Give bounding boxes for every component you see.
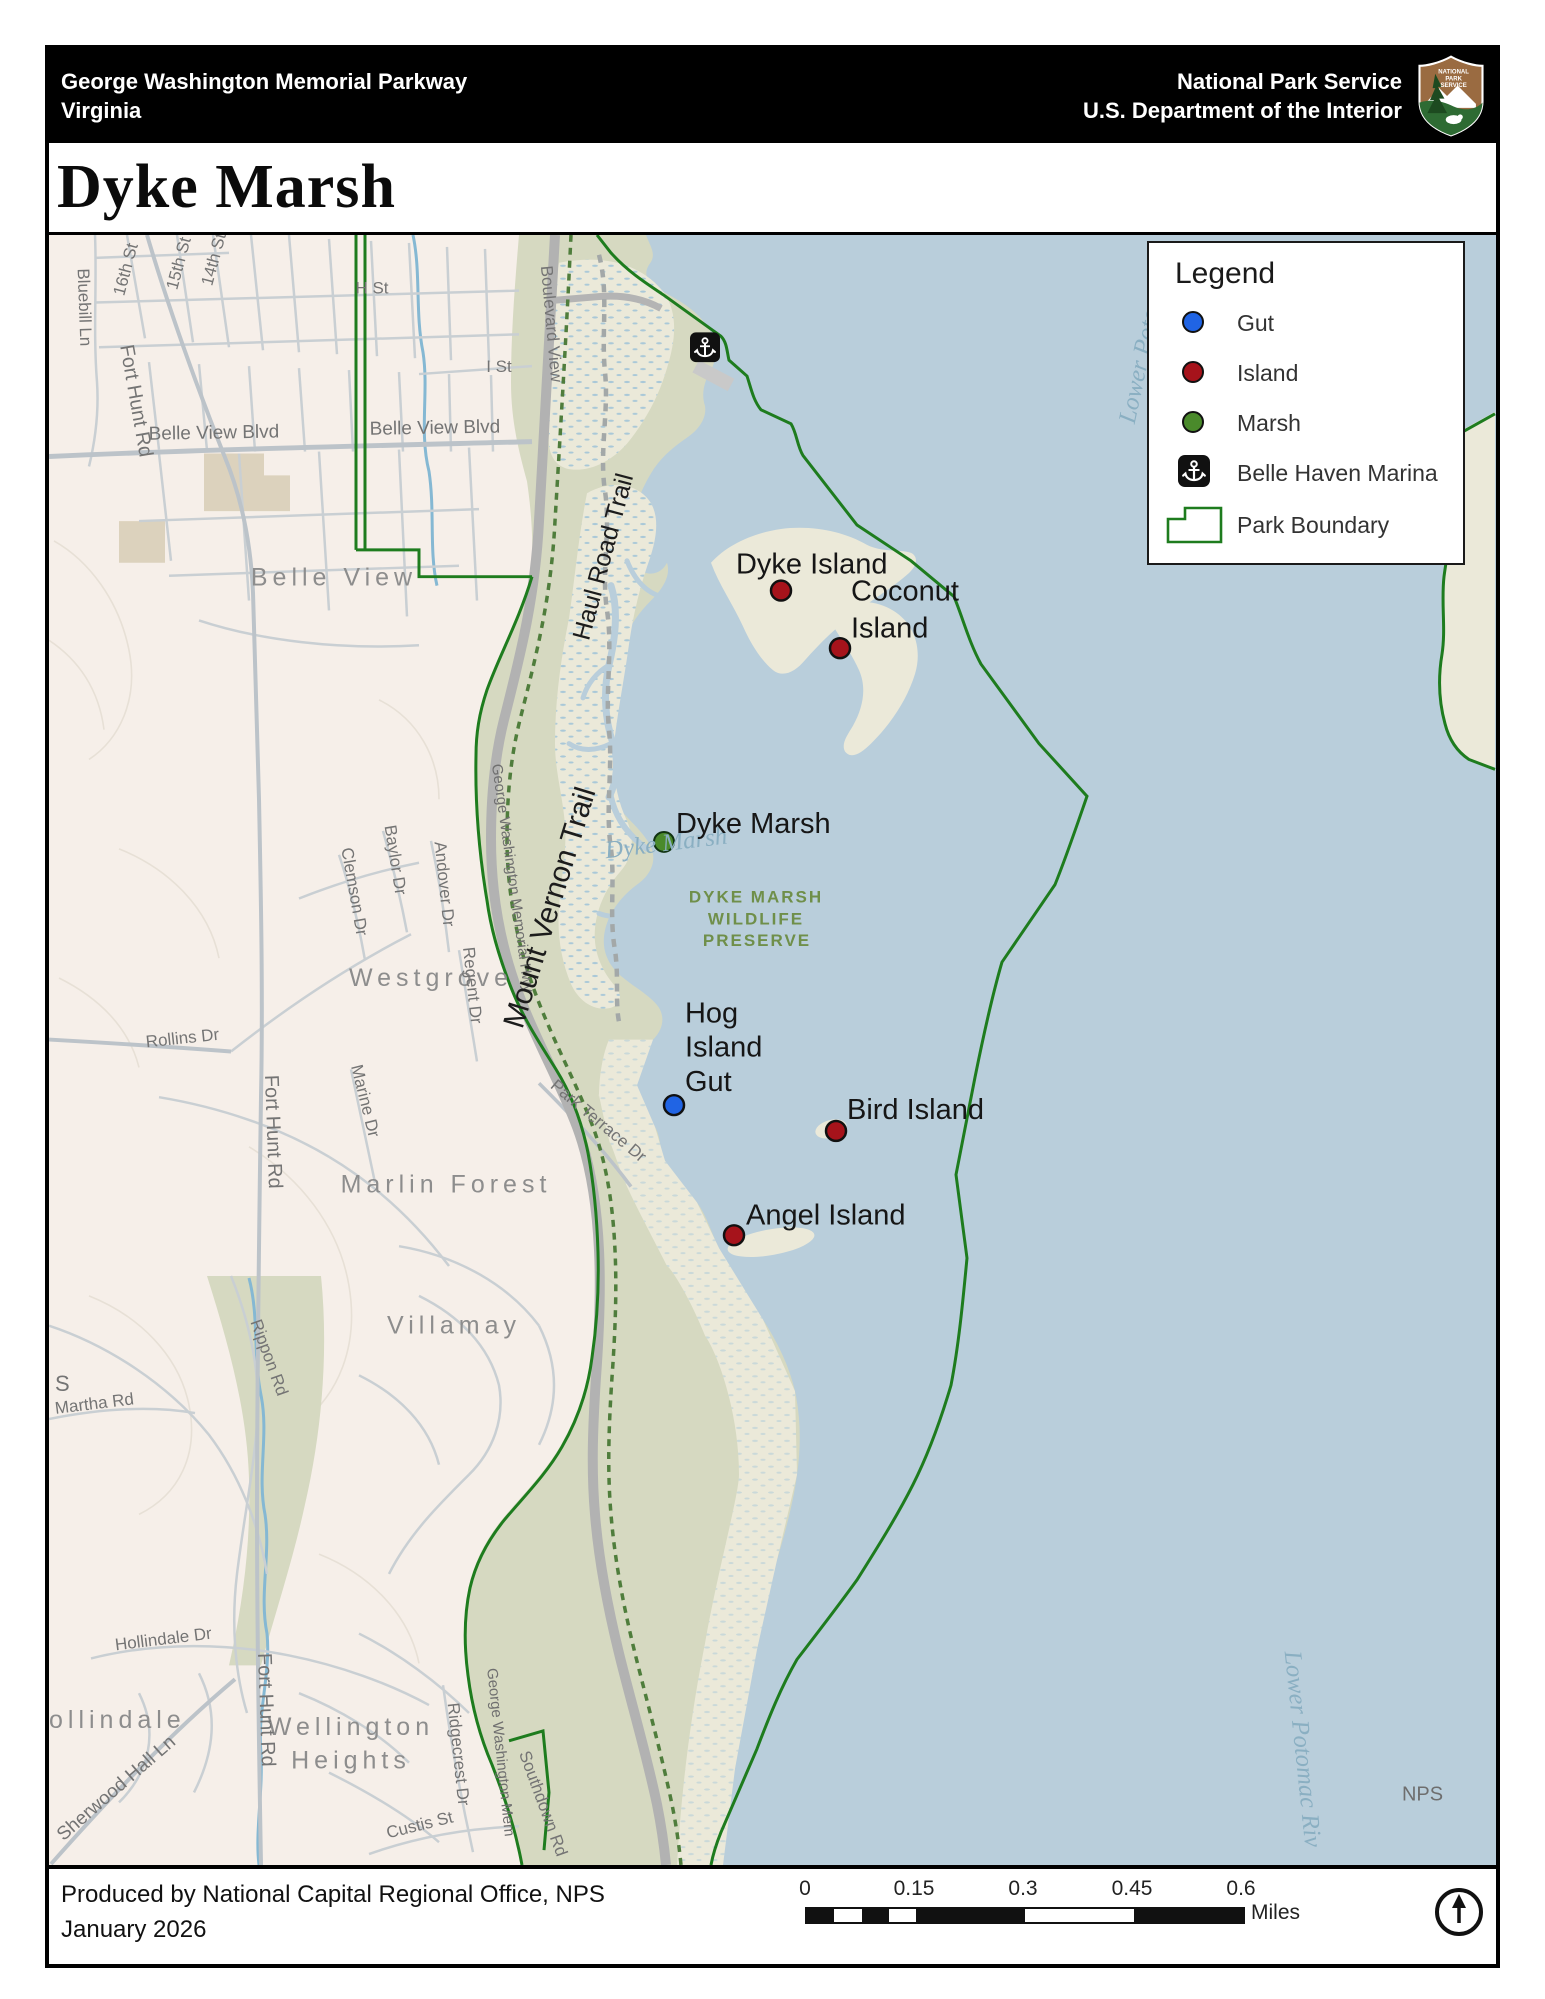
coconut-island-marker — [830, 638, 850, 658]
legend-item-marsh: Marsh — [1149, 407, 1463, 447]
label-dyke-marsh: Dyke Marsh — [676, 808, 831, 840]
street-i-st: I St — [486, 357, 512, 376]
street-s-fragment: S — [55, 1371, 70, 1396]
label-coconut: Coconut — [851, 576, 959, 608]
title-band: Dyke Marsh — [49, 143, 1496, 232]
scale-unit: Miles — [1251, 1901, 1300, 1925]
nps-map-page: George Washington Memorial Parkway Virgi… — [0, 0, 1545, 1999]
dyke-island-marker — [771, 581, 791, 601]
scale-tick-0: 0 — [799, 1877, 811, 1901]
legend-item-island: Island — [1149, 357, 1463, 397]
scale-tick-4: 0.6 — [1226, 1877, 1255, 1901]
street-bluebill-ln: Bluebill Ln — [74, 268, 96, 347]
legend-box: Legend Gut Island Marsh — [1147, 241, 1465, 565]
street-fort-hunt-rd-2: Fort Hunt Rd — [260, 1075, 286, 1189]
park-boundary-swatch-icon — [1165, 505, 1225, 545]
header-left: George Washington Memorial Parkway Virgi… — [61, 67, 467, 125]
footer-credit-line2: January 2026 — [61, 1912, 605, 1947]
hog-island-gut-marker — [664, 1095, 684, 1115]
angel-island-marker — [724, 1225, 744, 1245]
park-name: George Washington Memorial Parkway — [61, 67, 467, 96]
map-sheet-frame: George Washington Memorial Parkway Virgi… — [45, 45, 1500, 1968]
neighborhood-wellington: Wellington — [268, 1713, 434, 1741]
neighborhood-marlin-forest: Marlin Forest — [341, 1171, 552, 1199]
street-belle-view-blvd-2: Belle View Blvd — [369, 417, 500, 440]
scale-tick-3: 0.45 — [1112, 1877, 1153, 1901]
logo-text-1: NATIONAL — [1438, 70, 1469, 76]
scale-tick-1: 0.15 — [894, 1877, 935, 1901]
neighborhood-westgrove: Westgrove — [349, 964, 513, 992]
agency-name: National Park Service — [1083, 67, 1402, 96]
label-hog-island-gut: Gut — [685, 1066, 732, 1098]
preserve-label-2: WILDLIFE — [708, 909, 804, 928]
scale-bar: 0 0.15 0.3 0.45 0.6 Miles — [805, 1877, 1325, 1947]
legend-label-marsh: Marsh — [1237, 410, 1301, 437]
gut-dot-icon — [1182, 311, 1204, 333]
legend-label-marina: Belle Haven Marina — [1237, 460, 1438, 487]
neighborhood-villamay: Villamay — [387, 1312, 521, 1340]
label-bird-island: Bird Island — [847, 1094, 984, 1126]
footer-credits: Produced by National Capital Regional Of… — [61, 1877, 605, 1947]
bird-island-marker — [826, 1121, 846, 1141]
neighborhood-heights: Heights — [291, 1747, 411, 1775]
park-state: Virginia — [61, 96, 467, 125]
scale-tick-2: 0.3 — [1008, 1877, 1037, 1901]
header-bar: George Washington Memorial Parkway Virgi… — [49, 49, 1496, 143]
preserve-label-1: DYKE MARSH — [689, 888, 823, 907]
logo-text-3: SERVICE — [1440, 83, 1466, 89]
legend-item-marina: Belle Haven Marina — [1149, 455, 1463, 495]
page-title: Dyke Marsh — [49, 152, 396, 223]
street-fort-hunt-rd-3: Fort Hunt Rd — [253, 1653, 279, 1767]
north-arrow-icon — [1432, 1885, 1486, 1939]
label-angel-island: Angel Island — [746, 1199, 906, 1231]
label-coconut-island: Island — [851, 612, 928, 644]
island-dot-icon — [1182, 361, 1204, 383]
legend-item-boundary: Park Boundary — [1149, 505, 1463, 545]
street-belle-view-blvd-1: Belle View Blvd — [148, 422, 279, 445]
marsh-dot-icon — [1182, 411, 1204, 433]
footer-bar: Produced by National Capital Regional Of… — [49, 1865, 1496, 1964]
logo-text-2: PARK — [1445, 76, 1462, 82]
legend-label-boundary: Park Boundary — [1237, 512, 1389, 539]
legend-label-gut: Gut — [1237, 310, 1274, 337]
label-hog: Hog — [685, 998, 738, 1030]
header-right: National Park Service U.S. Department of… — [1083, 54, 1486, 138]
legend-title: Legend — [1149, 243, 1463, 291]
belle-haven-marina-anchor-icon — [690, 332, 720, 362]
neighborhood-hollindale: ollindale — [49, 1706, 186, 1734]
agency-block: National Park Service U.S. Department of… — [1083, 67, 1402, 125]
map-canvas: Lower Potomac Dyke Marsh Lower Potomac R… — [49, 232, 1496, 1865]
legend-label-island: Island — [1237, 360, 1298, 387]
street-h-st: H St — [355, 279, 388, 298]
scale-bar-segments — [805, 1907, 1245, 1924]
nps-arrowhead-logo-icon: NATIONAL PARK SERVICE — [1416, 54, 1486, 138]
footer-credit-line1: Produced by National Capital Regional Of… — [61, 1877, 605, 1912]
preserve-label-3: PRESERVE — [703, 931, 811, 950]
legend-item-gut: Gut — [1149, 307, 1463, 347]
map-credit: NPS — [1402, 1783, 1443, 1805]
neighborhood-belle-view: Belle View — [251, 564, 417, 592]
label-hog-island: Island — [685, 1032, 762, 1064]
anchor-icon — [1178, 455, 1210, 487]
department-name: U.S. Department of the Interior — [1083, 96, 1402, 125]
